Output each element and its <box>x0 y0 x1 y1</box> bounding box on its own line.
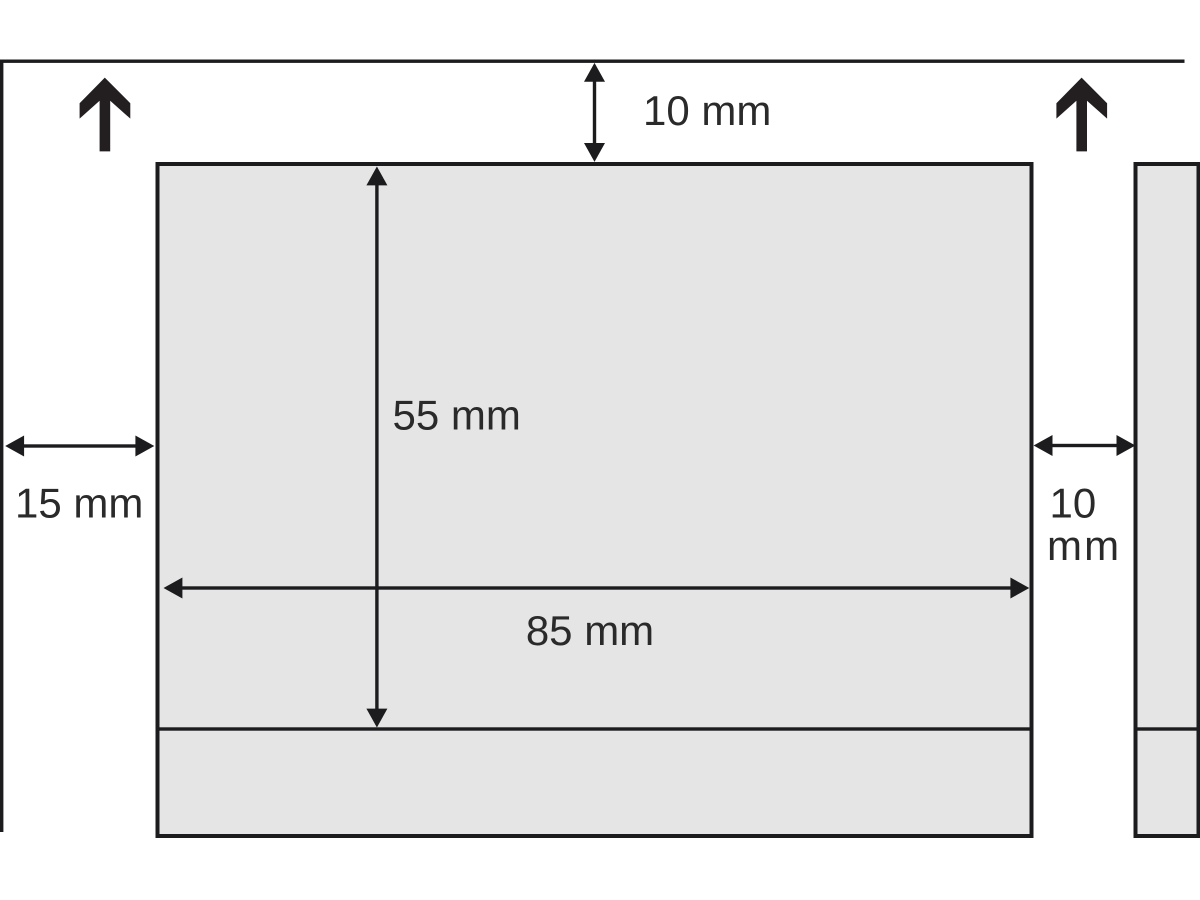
svg-text:mm: mm <box>1047 522 1121 569</box>
svg-text:10: 10 <box>1050 480 1097 527</box>
svg-text:85 mm: 85 mm <box>526 607 654 654</box>
svg-text:10 mm: 10 mm <box>643 87 771 134</box>
svg-text:55 mm: 55 mm <box>393 392 521 439</box>
svg-text:15 mm: 15 mm <box>15 480 143 527</box>
